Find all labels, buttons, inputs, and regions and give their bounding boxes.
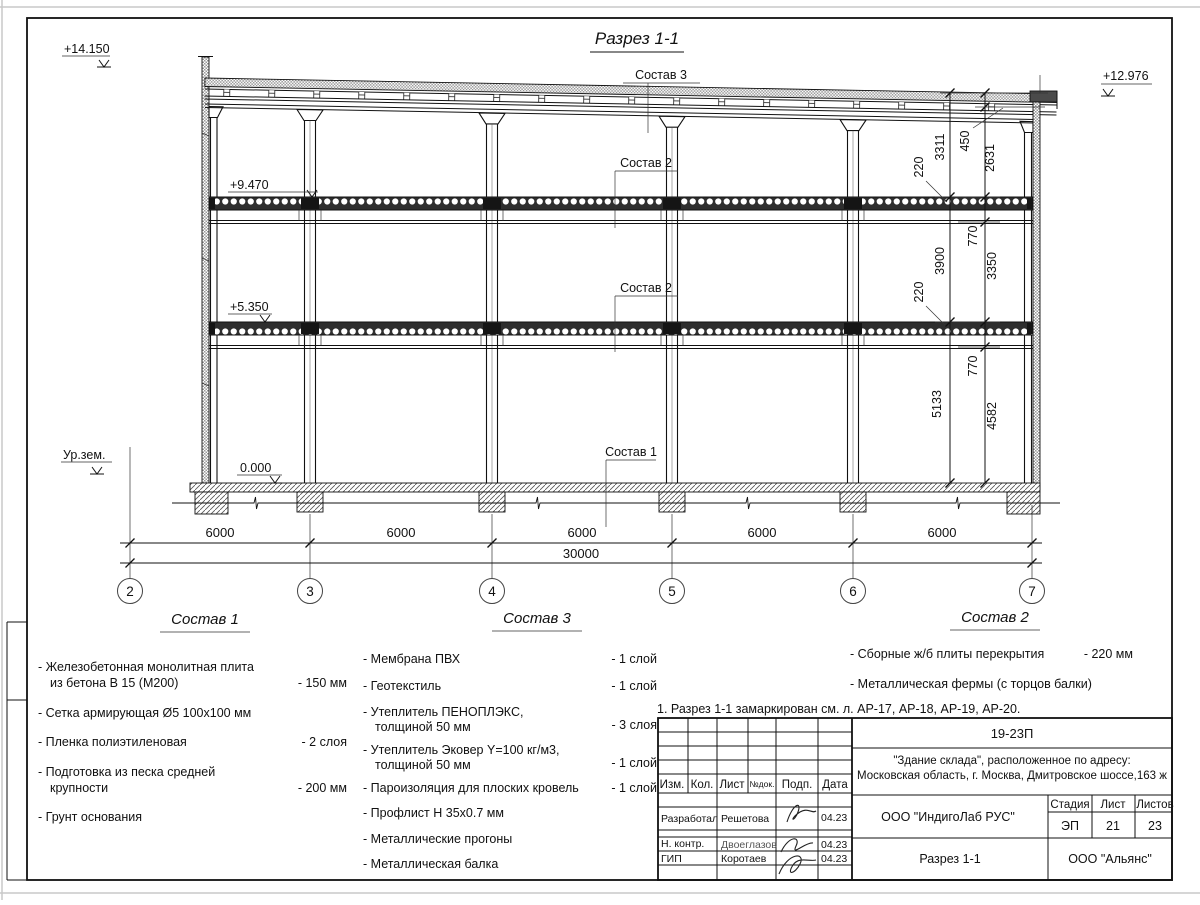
legend-3-title: Состав 3 xyxy=(503,610,571,627)
legend-item: - Утеплитель Эковер Y=100 кг/м3, xyxy=(363,743,559,757)
elevation-top-left: +14.150 xyxy=(62,42,111,67)
legend-item: - Металлическая фермы (с торцов балки) xyxy=(850,677,1092,691)
svg-text:+14.150: +14.150 xyxy=(64,42,110,56)
drawing-title: Разрез 1-1 xyxy=(595,29,679,48)
row-role-gip: ГИП xyxy=(661,853,682,865)
callouts: Состав 3 Состав 2 Состав 2 Состав 1 xyxy=(605,68,700,527)
legend-value: - 1 слой xyxy=(611,679,657,693)
row-role-ncontrol: Н. контр. xyxy=(661,838,704,850)
dim-450: 450 xyxy=(958,131,972,152)
row-date-gip: 04.23 xyxy=(821,853,847,865)
legend-item: - Пароизоляция для плоских кровель xyxy=(363,781,579,795)
sheets-label: Листов xyxy=(1136,799,1173,811)
svg-text:Состав 3: Состав 3 xyxy=(635,68,687,82)
axis-5: 5 xyxy=(668,584,676,599)
callout-sostav-2-lower: Состав 2 xyxy=(615,281,678,352)
stage-label: Стадия xyxy=(1050,799,1089,811)
legend-item: - Мембрана ПВХ xyxy=(363,652,461,666)
col-doc: №док. xyxy=(750,779,775,789)
dim-3350: 3350 xyxy=(985,252,999,280)
legend-item: из бетона В 15 (М200) xyxy=(50,676,178,690)
dim-2631: 2631 xyxy=(983,144,997,172)
sheet-name: Разрез 1-1 xyxy=(919,852,980,866)
dim-bay-5: 6000 xyxy=(928,525,957,540)
svg-text:+9.470: +9.470 xyxy=(230,178,269,192)
org-name: ООО "Альянс" xyxy=(1068,852,1152,866)
axis-4: 4 xyxy=(488,584,496,599)
legend-item: крупности xyxy=(50,781,108,795)
svg-text:Состав 2: Состав 2 xyxy=(620,156,672,170)
legend-item: - Геотекстиль xyxy=(363,679,441,693)
col-list: Лист xyxy=(720,779,746,791)
column-axis-6 xyxy=(840,120,866,483)
note: 1. Разрез 1-1 замаркирован см. л. АР-17,… xyxy=(657,702,1020,716)
row-role-developer: Разработал xyxy=(661,813,718,825)
dim-770-lower: 770 xyxy=(966,356,980,377)
legend-2-title: Состав 2 xyxy=(961,609,1029,626)
legend-item: - Сетка армирующая Ø5 100х100 мм xyxy=(38,706,251,720)
column-left-wall xyxy=(209,107,223,484)
axis-7: 7 xyxy=(1028,584,1036,599)
legend-item: - Профлист Н 35х0.7 мм xyxy=(363,806,504,820)
sheets-value: 23 xyxy=(1148,819,1162,833)
dim-bay-4: 6000 xyxy=(748,525,777,540)
floor-slab-upper xyxy=(209,197,1033,224)
legend-sostav-3: Состав 3 - Мембрана ПВХ - 1 слой - Геоте… xyxy=(363,610,657,871)
legend-item: - Сборные ж/б плиты перекрытия xyxy=(850,647,1044,661)
callout-sostav-2-upper: Состав 2 xyxy=(615,156,678,228)
legend-item: - Металлические прогоны xyxy=(363,832,512,846)
row-date-developer: 04.23 xyxy=(821,812,847,824)
dim-770-upper: 770 xyxy=(966,226,980,247)
dim-total: 30000 xyxy=(563,546,599,561)
legend-value: - 1 слой xyxy=(611,652,657,666)
legend-value: - 2 слоя xyxy=(302,735,347,749)
sheet-value: 21 xyxy=(1106,819,1120,833)
floor-slab-lower xyxy=(209,322,1033,349)
legend-sostav-1: Состав 1 - Железобетонная монолитная пли… xyxy=(38,611,347,824)
signature-developer xyxy=(787,805,816,822)
titleblock: Изм. Кол. Лист №док. Подп. Дата Разработ… xyxy=(658,718,1174,880)
row-name-gip: Коротаев xyxy=(721,853,767,865)
row-date-ncontrol: 04.23 xyxy=(821,839,847,851)
legend-item: - Металлическая балка xyxy=(363,857,498,871)
col-sign: Подп. xyxy=(782,779,813,791)
legend-value: - 220 мм xyxy=(1084,647,1133,661)
dimension-bays: 6000 6000 6000 6000 6000 xyxy=(120,525,1042,548)
legend-item: - Утеплитель ПЕНОПЛЭКС, xyxy=(363,705,523,719)
legend-value: - 200 мм xyxy=(298,781,347,795)
signature-ncontrol xyxy=(779,839,816,874)
elevation-top-right: +12.976 xyxy=(1101,69,1152,96)
column-right-wall xyxy=(1020,121,1033,483)
dim-bay-2: 6000 xyxy=(387,525,416,540)
col-date: Дата xyxy=(822,779,848,791)
dim-bay-3: 6000 xyxy=(568,525,597,540)
beam-stubs-lower xyxy=(299,335,864,346)
axis-2: 2 xyxy=(126,584,134,599)
elevation-floor2: +5.350 xyxy=(228,300,272,322)
frame-side-boxes xyxy=(7,622,27,880)
object-line1: "Здание склада", расположенное по адресу… xyxy=(893,755,1130,767)
dim-220-lower: 220 xyxy=(912,282,926,303)
dimension-total: 30000 xyxy=(120,546,1042,568)
legend-sostav-2: Состав 2 - Сборные ж/б плиты перекрытия … xyxy=(850,609,1133,691)
column-axis-4 xyxy=(479,113,505,483)
dim-220-upper: 220 xyxy=(912,157,926,178)
legend-value: - 1 слой xyxy=(611,781,657,795)
stage-value: ЭП xyxy=(1061,819,1079,833)
dim-3311: 3311 xyxy=(933,134,947,161)
elevation-ground-level: Ур.зем. xyxy=(61,448,112,474)
axis-bubbles: 2 3 4 5 6 7 xyxy=(118,579,1045,604)
svg-text:Состав 1: Состав 1 xyxy=(605,445,657,459)
dim-3900: 3900 xyxy=(933,247,947,275)
object-line2: Московская область, г. Москва, Дмитровск… xyxy=(857,770,1167,782)
company: ООО "ИндигоЛаб РУС" xyxy=(881,810,1015,824)
doc-number: 19-23П xyxy=(991,726,1034,741)
legend-item: толщиной 50 мм xyxy=(375,720,471,734)
legend-value: - 150 мм xyxy=(298,676,347,690)
legend-item: толщиной 50 мм xyxy=(375,758,471,772)
col-kol: Кол. xyxy=(691,779,714,791)
svg-text:+5.350: +5.350 xyxy=(230,300,269,314)
beam-stubs-upper xyxy=(299,210,864,221)
svg-text:0.000: 0.000 xyxy=(240,461,271,475)
legend-item: - Подготовка из песка средней xyxy=(38,765,215,779)
dim-bay-1: 6000 xyxy=(206,525,235,540)
dimension-right: 3311 3900 5133 450 2631 770 3350 770 458… xyxy=(912,75,1048,488)
svg-text:Ур.зем.: Ур.зем. xyxy=(63,448,105,462)
axis-6: 6 xyxy=(849,584,857,599)
col-izm: Изм. xyxy=(660,779,685,791)
legend-item: - Грунт основания xyxy=(38,810,142,824)
section-drawing: Разрез 1-1 xyxy=(0,0,1200,900)
drawing-sheet: Разрез 1-1 xyxy=(0,0,1200,900)
legend-item: - Железобетонная монолитная плита xyxy=(38,660,254,674)
axis-3: 3 xyxy=(306,584,314,599)
sheet-label: Лист xyxy=(1101,799,1127,811)
row-name-developer: Решетова xyxy=(721,813,769,825)
legend-1-title: Состав 1 xyxy=(171,611,239,628)
legend-item: - Пленка полиэтиленовая xyxy=(38,735,187,749)
elevation-floor3: +9.470 xyxy=(228,178,319,197)
legend-value: - 1 слой xyxy=(611,756,657,770)
elevation-zero: 0.000 xyxy=(237,461,282,483)
dim-5133: 5133 xyxy=(930,390,944,418)
svg-text:Состав 2: Состав 2 xyxy=(620,281,672,295)
svg-text:+12.976: +12.976 xyxy=(1103,69,1149,83)
ground-slab xyxy=(190,483,1040,492)
row-name-ncontrol: Двоеглазов xyxy=(721,839,777,851)
dim-4582: 4582 xyxy=(985,402,999,430)
legend-value: - 3 слоя xyxy=(612,718,657,732)
column-axis-3 xyxy=(297,110,323,484)
